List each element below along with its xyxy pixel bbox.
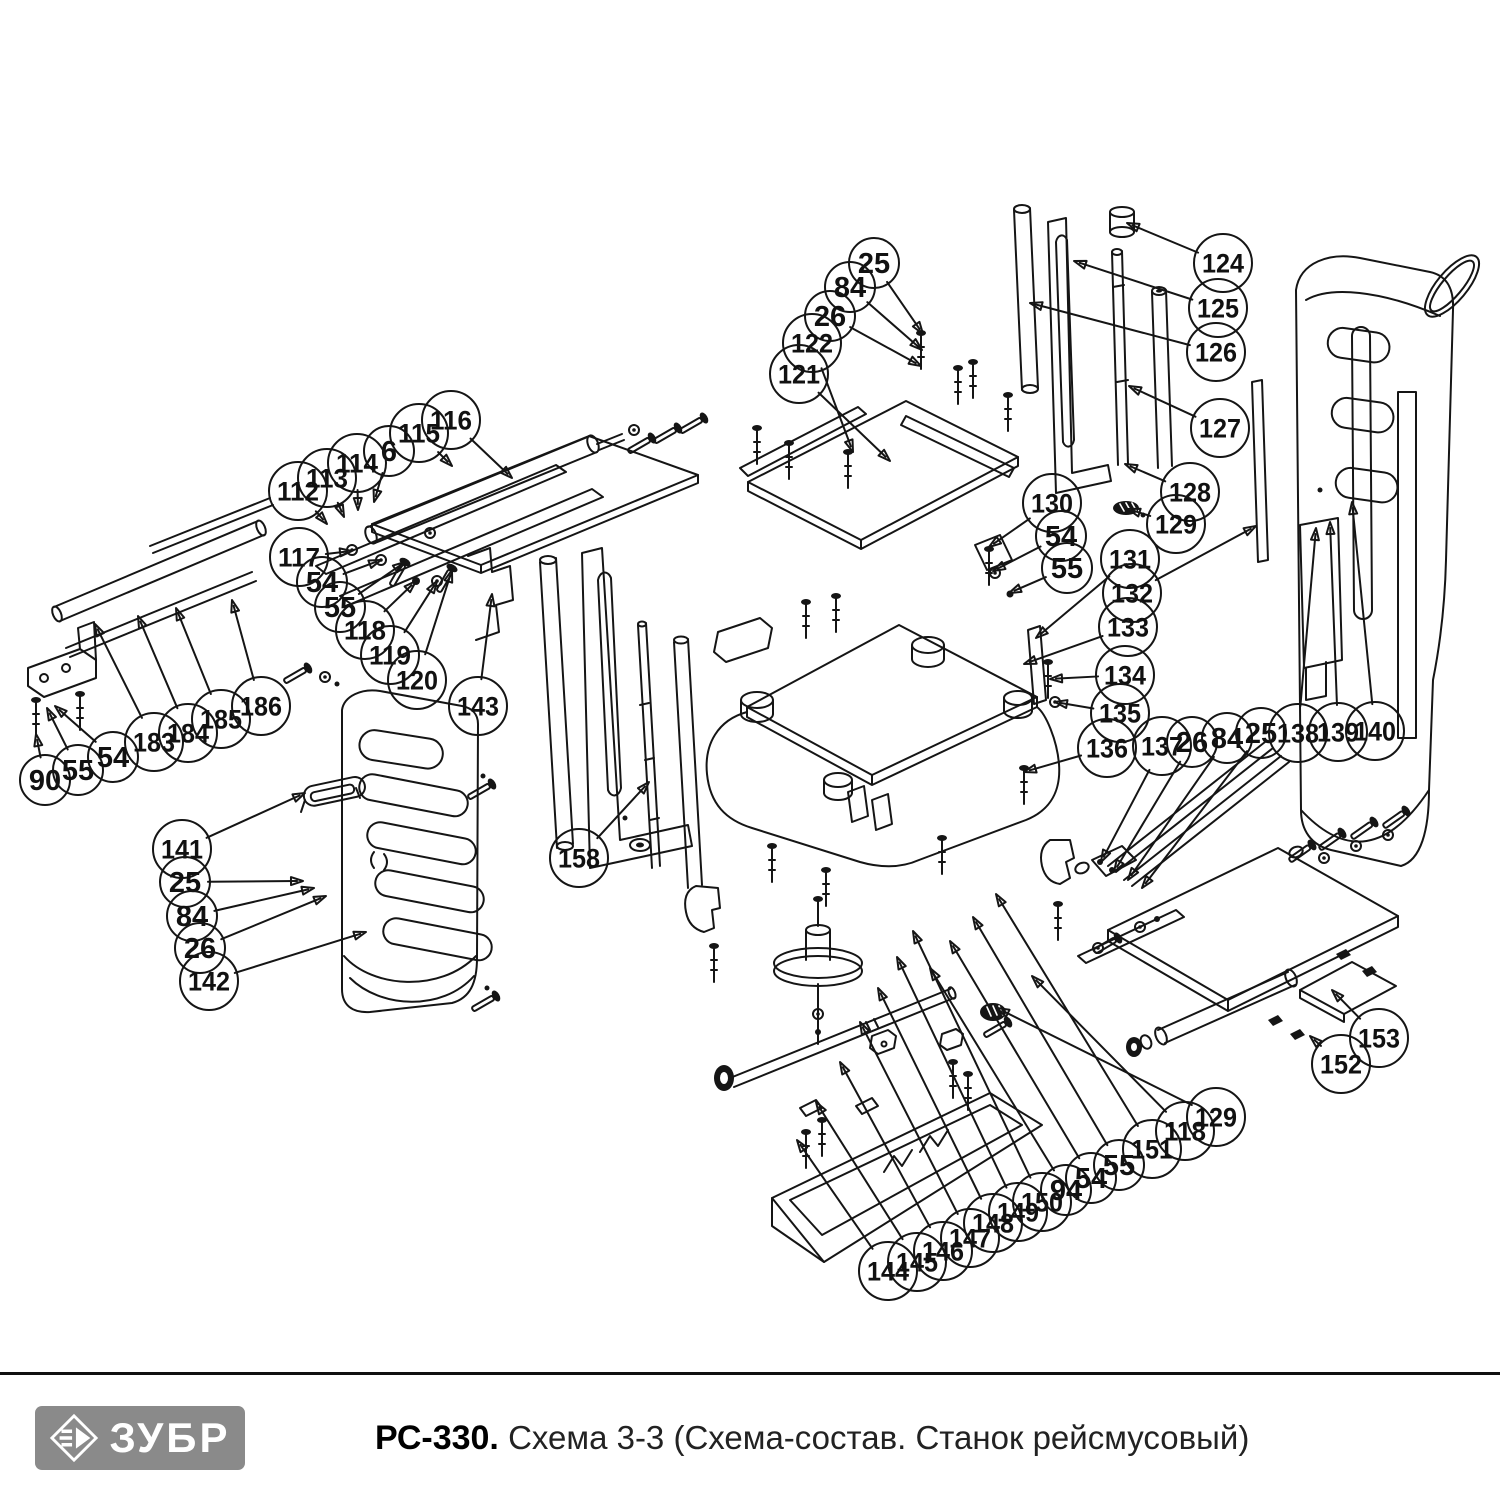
leader-arrowhead xyxy=(231,600,239,613)
crank-and-axle xyxy=(714,896,1014,1091)
svg-text:143: 143 xyxy=(457,691,499,721)
diagram-page: 1161156114113112117545511811912014390555… xyxy=(0,0,1500,1500)
svg-text:84: 84 xyxy=(176,901,208,933)
leader-arrowhead xyxy=(1009,585,1022,593)
leader-arrowhead xyxy=(353,932,366,940)
leader-arrowhead xyxy=(897,957,906,970)
callout-141-20: 141 xyxy=(153,793,305,878)
exploded-view-drawing: 1161156114113112117545511811912014390555… xyxy=(0,0,1500,1500)
machine-base-assembly xyxy=(685,593,1074,982)
brand-logo: ЗУБР xyxy=(35,1406,245,1470)
callout-152-67: 152 xyxy=(1310,1035,1370,1093)
leader-arrowhead xyxy=(1129,386,1142,395)
callout-54-61: 54 xyxy=(950,941,1116,1203)
footer-divider xyxy=(0,1372,1500,1375)
svg-text:142: 142 xyxy=(188,966,230,996)
svg-text:120: 120 xyxy=(396,665,438,695)
svg-text:115: 115 xyxy=(398,418,440,448)
brand-name: ЗУБР xyxy=(109,1417,230,1459)
svg-text:55: 55 xyxy=(62,755,94,787)
callout-186-19: 186 xyxy=(231,600,290,735)
callout-25-21: 25 xyxy=(160,857,303,907)
svg-text:54: 54 xyxy=(1045,521,1077,553)
leader-arrowhead xyxy=(1030,302,1043,310)
callout-55-39: 55 xyxy=(1009,543,1092,593)
svg-text:126: 126 xyxy=(1195,337,1237,367)
callout-143-12: 143 xyxy=(449,594,507,735)
svg-text:127: 127 xyxy=(1199,413,1241,443)
svg-text:84: 84 xyxy=(834,272,866,304)
svg-text:186: 186 xyxy=(240,691,282,721)
outfeed-table-assembly xyxy=(1074,742,1413,1057)
svg-text:128: 128 xyxy=(1169,477,1211,507)
svg-text:130: 130 xyxy=(1031,488,1073,518)
svg-text:135: 135 xyxy=(1099,698,1141,728)
model-number: РС-330. xyxy=(375,1419,499,1457)
leader-arrowhead xyxy=(878,988,887,1001)
svg-text:121: 121 xyxy=(778,359,820,389)
svg-text:124: 124 xyxy=(1202,248,1244,278)
callout-55-62: 55 xyxy=(973,917,1144,1190)
schema-subtitle: Схема 3-3 (Схема-состав. Станок рейсмусо… xyxy=(508,1419,1249,1456)
svg-text:129: 129 xyxy=(1155,509,1197,539)
leader-arrowhead xyxy=(374,489,382,502)
column-posts-left xyxy=(540,548,702,888)
leader-arrowhead xyxy=(301,887,314,895)
leader-arrowhead xyxy=(47,708,56,721)
callout-127-34: 127 xyxy=(1129,386,1249,457)
leader-arrowhead xyxy=(840,1062,849,1074)
svg-text:84: 84 xyxy=(1211,723,1243,755)
svg-text:139: 139 xyxy=(1317,717,1359,747)
svg-text:129: 129 xyxy=(1195,1102,1237,1132)
side-cover-right xyxy=(1296,247,1488,866)
leader-arrowhead xyxy=(95,624,104,637)
svg-text:122: 122 xyxy=(791,328,833,358)
svg-text:153: 153 xyxy=(1358,1023,1400,1053)
leader-arrowhead xyxy=(313,896,326,904)
callout-55-14: 55 xyxy=(47,708,103,795)
svg-text:133: 133 xyxy=(1107,612,1149,642)
callout-118-64: 118 xyxy=(1032,976,1214,1160)
callout-129-65: 129 xyxy=(997,1008,1245,1146)
svg-text:54: 54 xyxy=(97,742,129,774)
footer: ЗУБР РС-330. Схема 3-3 (Схема-состав. Ст… xyxy=(35,1406,1249,1470)
callout-124-31: 124 xyxy=(1127,223,1252,292)
callouts-layer: 1161156114113112117545511811912014390555… xyxy=(20,223,1408,1300)
svg-text:25: 25 xyxy=(169,867,201,899)
side-cover-left xyxy=(301,690,502,1014)
brand-diamond-arrow-icon xyxy=(49,1413,99,1463)
page-title: РС-330. Схема 3-3 (Схема-состав. Станок … xyxy=(375,1419,1249,1458)
leader-arrowhead xyxy=(1125,464,1138,472)
callout-158-25: 158 xyxy=(550,782,649,887)
callout-140-52: 140 xyxy=(1346,502,1404,760)
leader-arrowhead xyxy=(913,931,922,944)
svg-text:55: 55 xyxy=(1051,553,1083,585)
svg-text:138: 138 xyxy=(1277,718,1319,748)
svg-text:140: 140 xyxy=(1354,716,1396,746)
leader-arrowhead xyxy=(909,357,921,366)
svg-text:136: 136 xyxy=(1086,733,1128,763)
svg-text:112: 112 xyxy=(277,476,319,506)
leader-arrowhead xyxy=(1244,526,1256,535)
svg-text:152: 152 xyxy=(1320,1049,1362,1079)
svg-text:158: 158 xyxy=(558,843,600,873)
svg-text:125: 125 xyxy=(1197,293,1239,323)
